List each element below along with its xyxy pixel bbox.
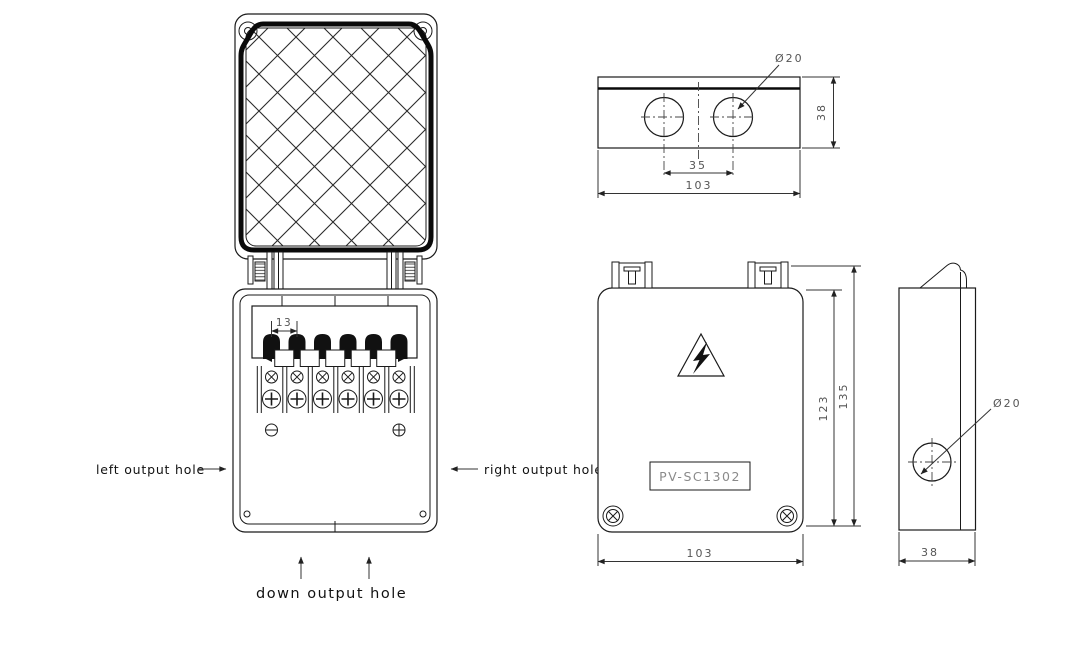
dim-dia20-top-label: Ø20 bbox=[775, 52, 804, 65]
drawing-canvas: 13 left output hole right output hole do… bbox=[0, 0, 1065, 666]
technical-drawing: 13 left output hole right output hole do… bbox=[0, 0, 1065, 666]
label-left-output-hole: left output hole bbox=[96, 462, 205, 477]
dim-38-top-label: 38 bbox=[815, 103, 828, 121]
plus-terminal-mark-icon bbox=[393, 424, 405, 436]
dim-13-label: 13 bbox=[276, 317, 292, 329]
dim-103-front-label: 103 bbox=[687, 547, 714, 560]
dim-103-top-label: 103 bbox=[686, 179, 713, 192]
cover-screw-right-icon bbox=[777, 506, 797, 526]
dim-35-label: 35 bbox=[689, 159, 707, 172]
lid-crosshatch-panel bbox=[246, 28, 426, 246]
cover-screw-left-icon bbox=[603, 506, 623, 526]
terminal-sliders bbox=[263, 350, 407, 367]
dim-123-label: 123 bbox=[817, 395, 830, 422]
dim-135-label: 135 bbox=[837, 383, 850, 410]
label-right-output-hole: right output hole bbox=[484, 462, 603, 477]
dim-38-side-label: 38 bbox=[921, 546, 939, 559]
label-down-output-hole: down output hole bbox=[256, 586, 407, 602]
lid bbox=[235, 14, 437, 259]
dim-dia20-side-label: Ø20 bbox=[993, 397, 1022, 410]
model-label: PV-SC1302 bbox=[659, 469, 741, 484]
